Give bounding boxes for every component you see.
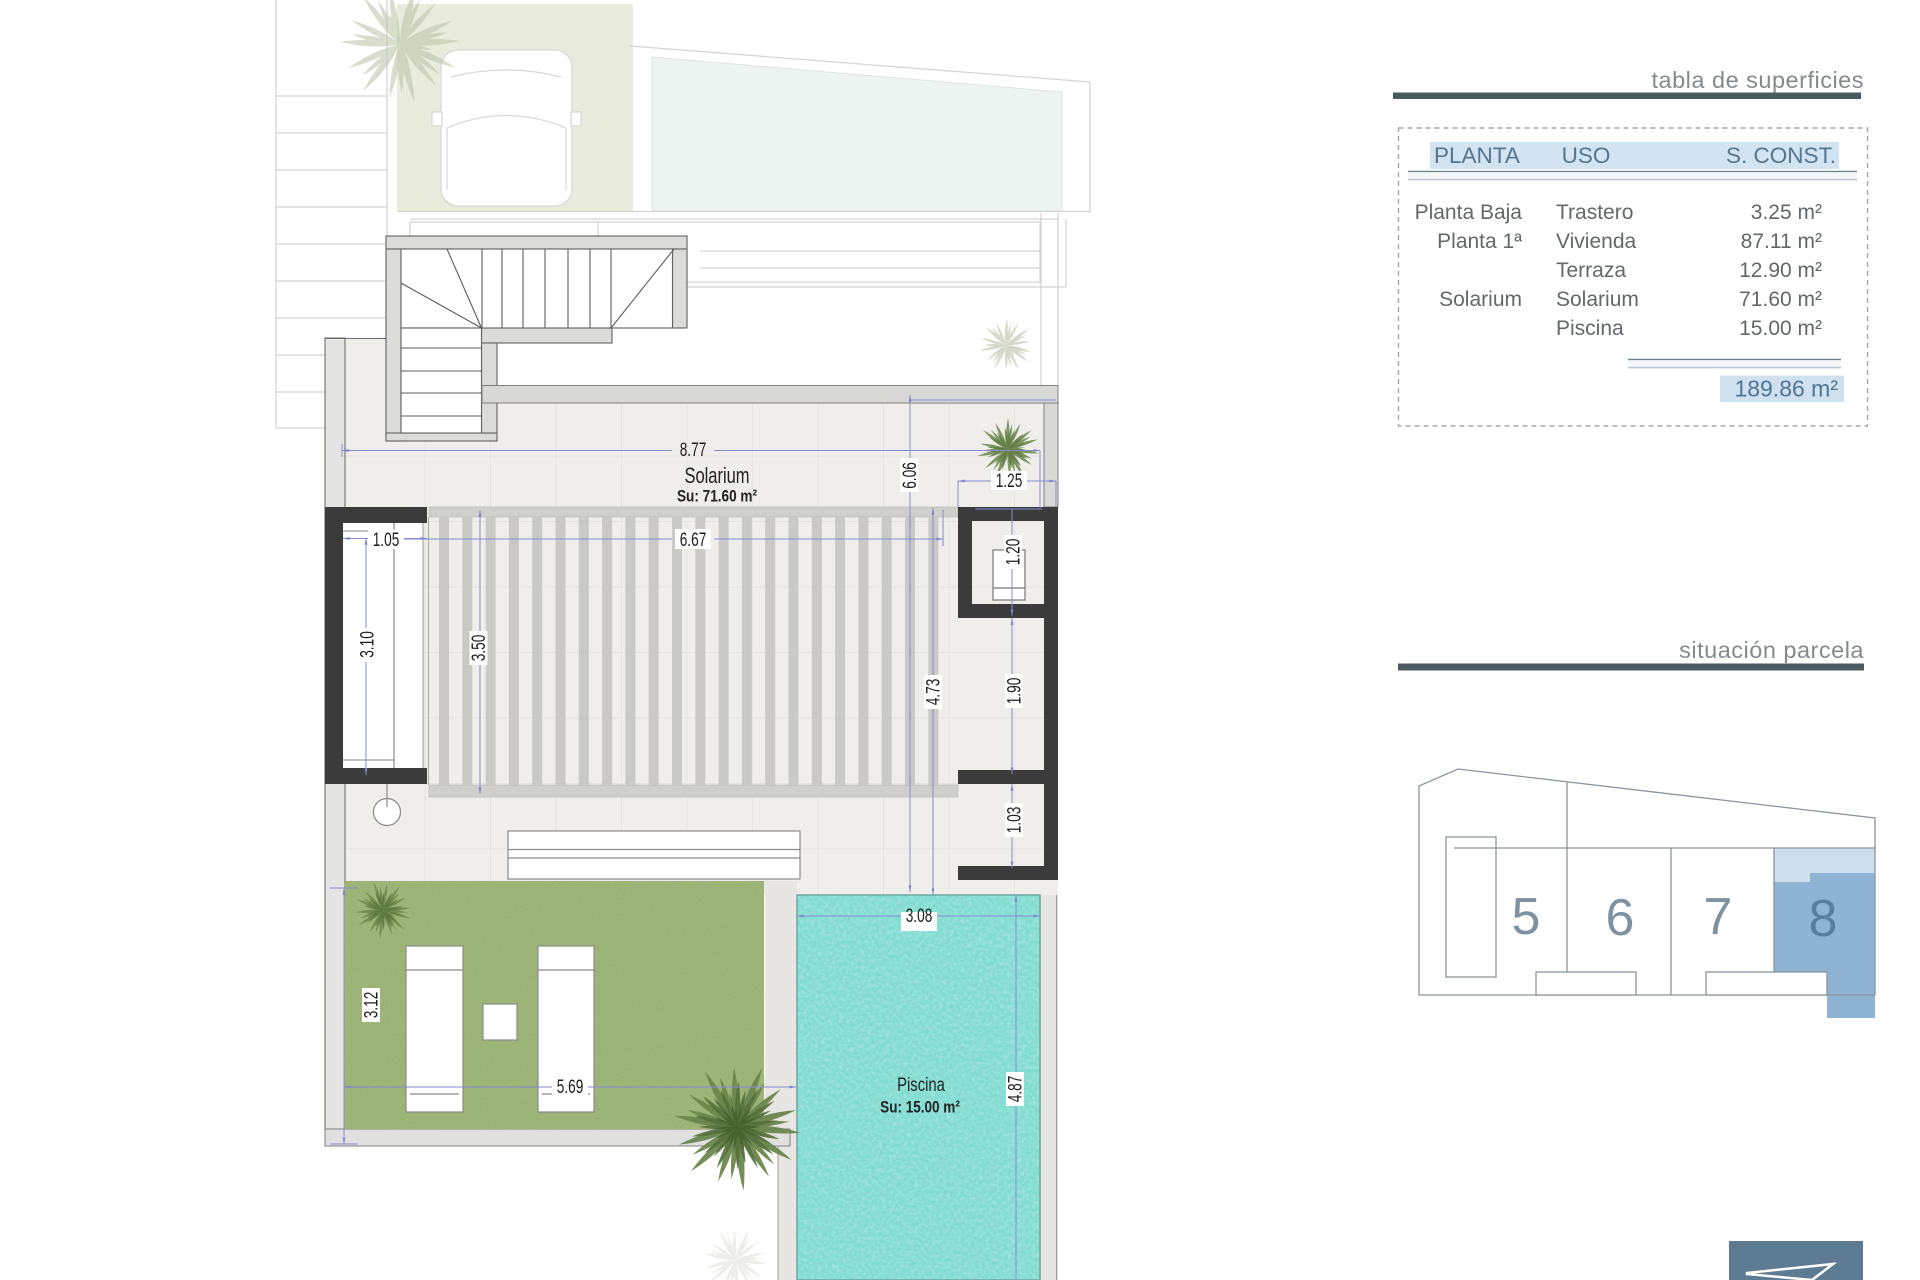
svg-text:S. CONST.: S. CONST. [1726,143,1836,168]
svg-text:PLANTA: PLANTA [1434,143,1520,168]
svg-text:3.12: 3.12 [360,992,382,1019]
svg-text:1.05: 1.05 [373,529,400,551]
svg-text:3.25 m²: 3.25 m² [1751,201,1822,224]
svg-text:4.73: 4.73 [922,679,944,706]
svg-text:situación parcela: situación parcela [1679,637,1864,663]
svg-text:15.00 m²: 15.00 m² [1739,317,1822,340]
svg-text:Piscina: Piscina [897,1074,945,1095]
svg-text:8.77: 8.77 [680,439,707,461]
svg-text:Solarium: Solarium [1556,288,1639,311]
svg-text:Solarium: Solarium [684,464,749,489]
svg-text:Terraza: Terraza [1556,259,1626,282]
svg-text:5.69: 5.69 [557,1076,584,1098]
svg-text:5: 5 [1512,888,1541,946]
svg-text:USO: USO [1562,143,1611,168]
svg-text:Planta Baja: Planta Baja [1415,201,1523,224]
svg-text:1.25: 1.25 [996,470,1023,492]
svg-text:Solarium: Solarium [1439,288,1522,311]
svg-text:tabla de superficies: tabla de superficies [1652,67,1864,93]
svg-text:1.03: 1.03 [1003,807,1025,834]
svg-text:Planta 1ª: Planta 1ª [1437,230,1522,253]
svg-text:Su: 15.00 m²: Su: 15.00 m² [880,1098,960,1117]
svg-text:3.50: 3.50 [468,635,490,662]
svg-text:3.10: 3.10 [356,631,378,658]
svg-text:Trastero: Trastero [1556,201,1633,224]
svg-text:Su: 71.60 m²: Su: 71.60 m² [677,487,757,506]
svg-text:12.90 m²: 12.90 m² [1739,259,1822,282]
svg-text:3.08: 3.08 [906,905,933,927]
svg-text:6: 6 [1606,889,1635,947]
svg-text:71.60 m²: 71.60 m² [1739,288,1822,311]
svg-text:189.86 m²: 189.86 m² [1734,376,1838,402]
svg-text:4.87: 4.87 [1004,1076,1026,1103]
svg-text:Piscina: Piscina [1556,317,1624,340]
svg-text:Vivienda: Vivienda [1556,230,1636,253]
svg-text:1.20: 1.20 [1002,539,1024,566]
svg-text:8: 8 [1809,890,1838,948]
svg-text:6.67: 6.67 [680,529,707,551]
svg-text:1.90: 1.90 [1003,678,1025,705]
svg-text:6.06: 6.06 [899,462,921,489]
svg-text:87.11 m²: 87.11 m² [1741,230,1822,253]
svg-text:7: 7 [1704,888,1733,946]
